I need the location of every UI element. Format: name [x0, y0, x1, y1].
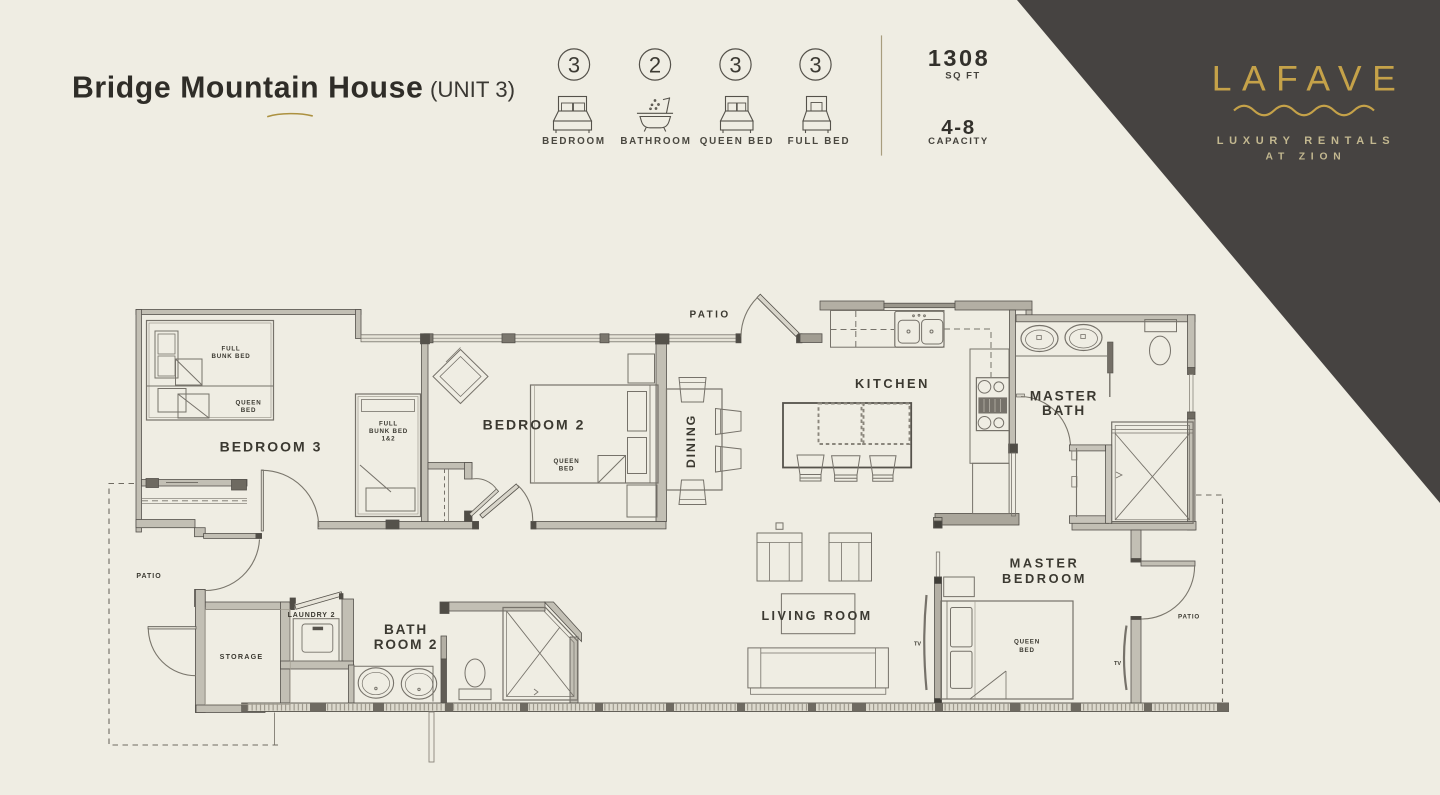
svg-text:QUEEN: QUEEN — [553, 458, 579, 465]
svg-text:1&2: 1&2 — [382, 436, 396, 443]
svg-text:BATH: BATH — [384, 622, 428, 637]
svg-text:PATIO: PATIO — [136, 573, 161, 580]
svg-text:QUEEN BED: QUEEN BED — [700, 136, 774, 147]
svg-text:LUXURY RENTALS: LUXURY RENTALS — [1217, 135, 1396, 147]
svg-text:SQ FT: SQ FT — [945, 71, 980, 82]
svg-text:AT ZION: AT ZION — [1265, 152, 1346, 163]
svg-text:PATIO: PATIO — [689, 310, 730, 321]
svg-text:BEDROOM: BEDROOM — [1002, 571, 1087, 586]
svg-text:LAFAVE: LAFAVE — [1212, 59, 1407, 99]
svg-text:TV: TV — [914, 642, 921, 648]
svg-text:BEDROOM 2: BEDROOM 2 — [483, 417, 586, 433]
svg-text:LAUNDRY 2: LAUNDRY 2 — [288, 612, 336, 619]
svg-text:3: 3 — [729, 53, 741, 78]
svg-text:KITCHEN: KITCHEN — [855, 376, 930, 391]
svg-text:PATIO: PATIO — [1178, 614, 1200, 621]
svg-text:BED: BED — [241, 407, 256, 414]
svg-text:STORAGE: STORAGE — [220, 652, 264, 661]
svg-text:BEDROOM: BEDROOM — [542, 136, 606, 147]
svg-text:BED: BED — [559, 466, 574, 473]
svg-text:QUEEN: QUEEN — [1014, 639, 1040, 646]
svg-text:(UNIT 3): (UNIT 3) — [430, 77, 515, 102]
svg-text:BATHROOM: BATHROOM — [620, 136, 691, 147]
svg-text:FULL BED: FULL BED — [788, 136, 851, 147]
svg-text:QUEEN: QUEEN — [235, 400, 261, 407]
svg-text:2: 2 — [649, 53, 661, 78]
svg-text:FULL: FULL — [379, 421, 398, 428]
svg-text:1308: 1308 — [928, 45, 990, 71]
svg-text:3: 3 — [809, 53, 821, 78]
svg-text:MASTER: MASTER — [1030, 389, 1098, 404]
svg-text:3: 3 — [568, 53, 580, 78]
svg-text:CAPACITY: CAPACITY — [928, 136, 989, 147]
svg-text:FULL: FULL — [221, 346, 240, 353]
svg-text:BUNK BED: BUNK BED — [211, 353, 250, 360]
svg-text:LIVING ROOM: LIVING ROOM — [761, 609, 872, 623]
svg-text:BATH: BATH — [1042, 403, 1086, 418]
svg-text:BED: BED — [1019, 647, 1034, 654]
svg-text:BUNK BED: BUNK BED — [369, 428, 408, 435]
svg-text:DINING: DINING — [684, 414, 698, 468]
svg-text:ROOM 2: ROOM 2 — [374, 637, 438, 652]
svg-text:Bridge Mountain House: Bridge Mountain House — [72, 72, 423, 105]
svg-text:TV: TV — [1114, 661, 1121, 667]
svg-text:BEDROOM 3: BEDROOM 3 — [220, 439, 323, 455]
svg-text:MASTER: MASTER — [1010, 556, 1080, 571]
